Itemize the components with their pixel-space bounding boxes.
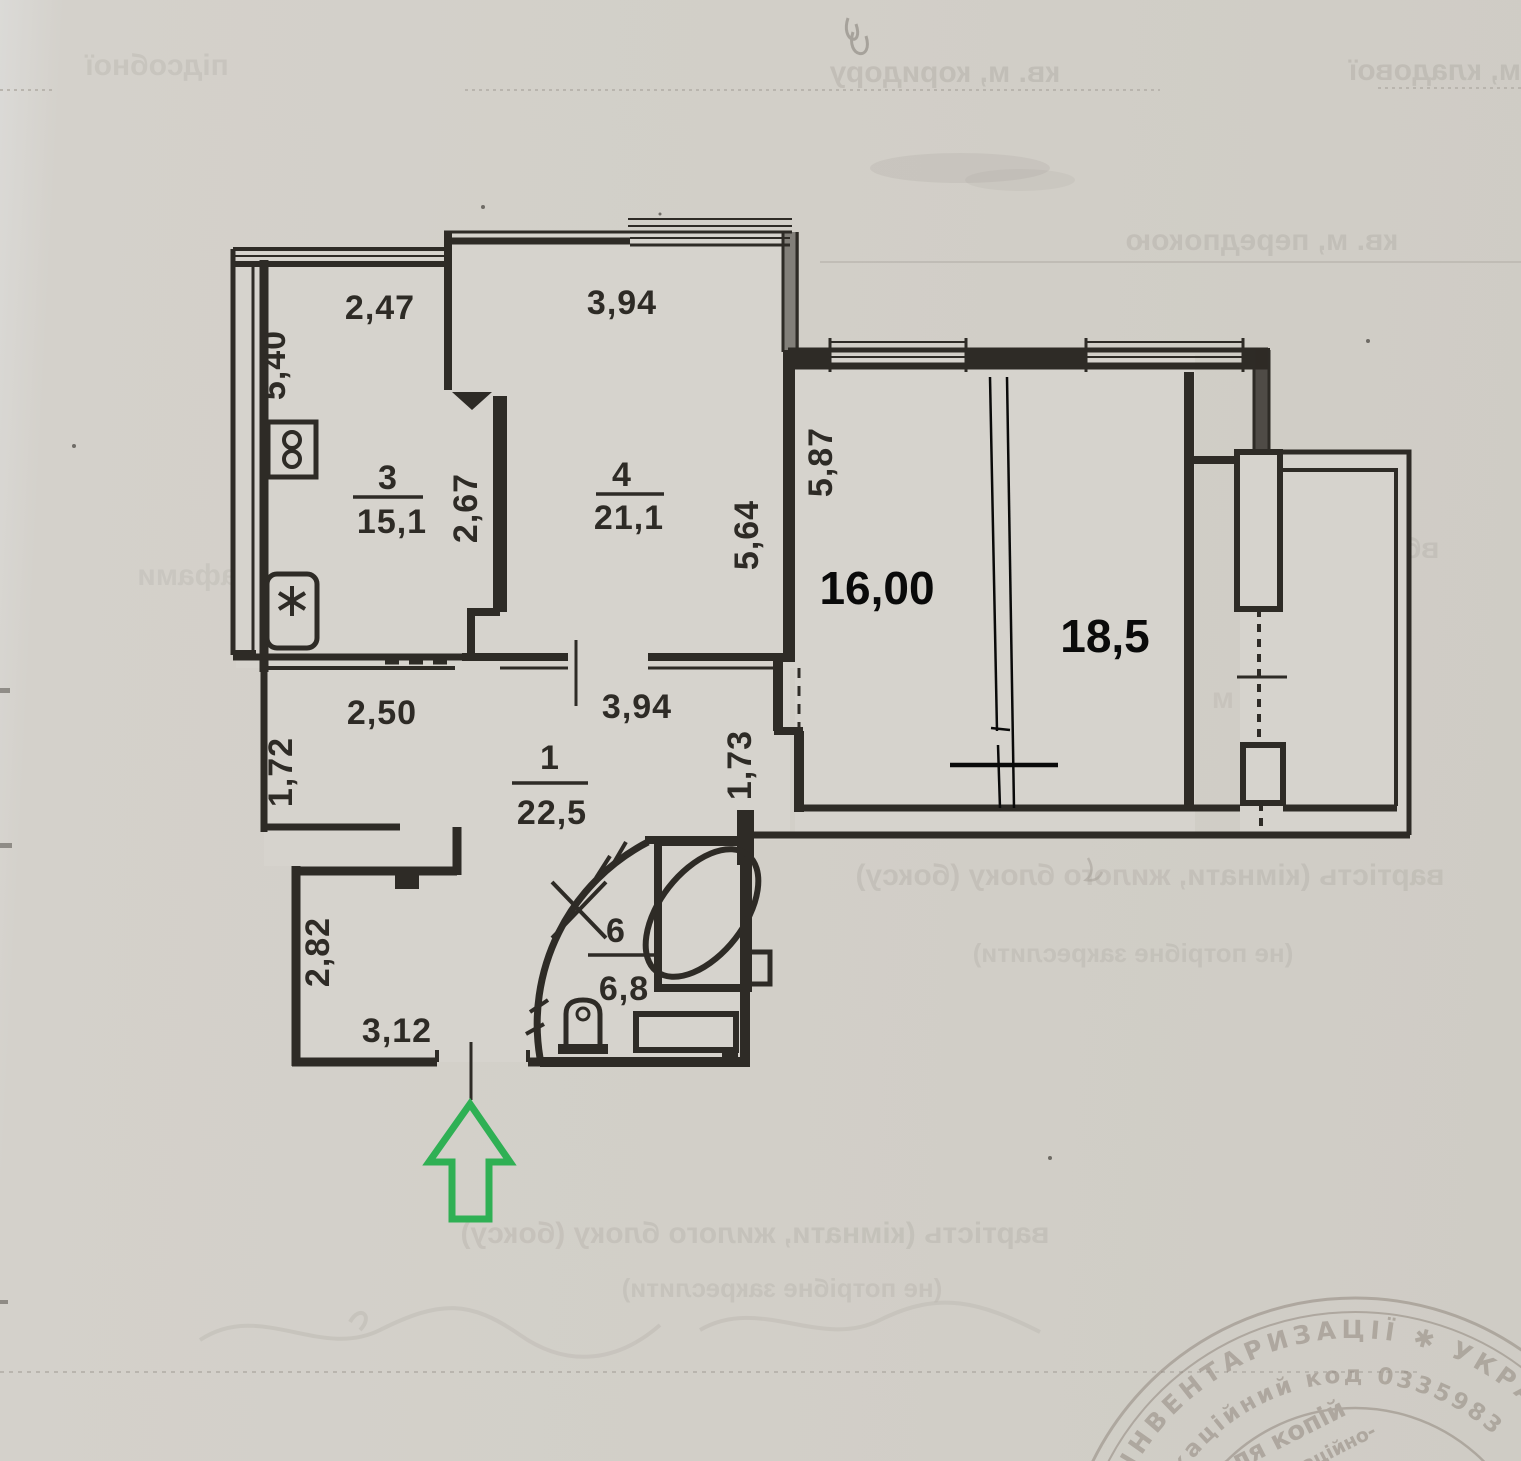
svg-text:6,8: 6,8 [599, 970, 649, 1008]
dim-2-67: 2,67 [447, 473, 485, 543]
dim-5-64: 5,64 [728, 500, 766, 570]
dim-2-47: 2,47 [345, 289, 415, 327]
balcony-wall-pillar-top [1237, 452, 1280, 609]
bleed-hallway-label: кв. м, передпокою [1126, 224, 1399, 257]
dim-3-94-top: 3,94 [587, 284, 657, 322]
dim-3-94-low: 3,94 [602, 688, 672, 726]
svg-text:3: 3 [378, 459, 398, 497]
faint-form-line-top [0, 88, 1521, 90]
svg-text:ТЕХНІЧНОЇ ІНВЕНТАРИЗАЦІЇ ✱ УКР: ТЕХНІЧНОЇ ІНВЕНТАРИЗАЦІЇ ✱ УКРАЇНА ✱ [987, 1220, 1521, 1461]
svg-text:21,1: 21,1 [594, 499, 664, 537]
stamp-outer-text: ТЕХНІЧНОЇ ІНВЕНТАРИЗАЦІЇ ✱ УКРАЇНА ✱ [987, 1220, 1521, 1461]
dim-5-87: 5,87 [802, 427, 840, 497]
entrance-arrow-icon [429, 1104, 510, 1219]
dim-1-73: 1,73 [721, 730, 759, 800]
balcony-wall-pillar-bottom [1243, 745, 1283, 803]
bleed-storeroom-label: кв. м, кладової [1348, 54, 1521, 87]
floor-plan-scan: кв. м, коридору кв. м, кладової підсобно… [0, 0, 1521, 1461]
bleed-value-line-1: вартість (кімнати, жилого блоку (боксу) [855, 859, 1444, 892]
bleed-value-line-2: вартість (кімнати, жилого блоку (боксу) [460, 1217, 1049, 1250]
dim-2-50: 2,50 [347, 694, 417, 732]
bleed-strike-note-1: (не потрібне закреслити) [973, 938, 1294, 968]
bleed-corridor-label: кв. м, коридору [829, 56, 1060, 89]
dim-1-72: 1,72 [262, 737, 300, 807]
bleed-strike-note-2: (не потрібне закреслити) [622, 1273, 943, 1303]
scanned-floor-plan-page: кв. м, коридору кв. м, кладової підсобно… [0, 0, 1521, 1461]
dim-5-40: 5,40 [255, 330, 293, 400]
added-area-16: 16,00 [819, 562, 934, 614]
svg-text:1: 1 [540, 739, 560, 777]
dim-2-82: 2,82 [299, 917, 337, 987]
svg-text:22,5: 22,5 [517, 794, 587, 832]
svg-text:6: 6 [606, 912, 626, 950]
bleed-signature-squiggle [200, 1303, 1040, 1357]
scan-edge-marks [0, 688, 12, 1304]
svg-text:4: 4 [612, 456, 632, 494]
added-area-18-5: 18,5 [1060, 610, 1150, 662]
dim-3-12: 3,12 [362, 1012, 432, 1050]
bleed-topleft-fragment: підсобної [85, 49, 229, 82]
handwritten-scribble-top [846, 18, 867, 54]
smudge-mark-2 [965, 169, 1075, 191]
svg-text:15,1: 15,1 [357, 503, 427, 541]
